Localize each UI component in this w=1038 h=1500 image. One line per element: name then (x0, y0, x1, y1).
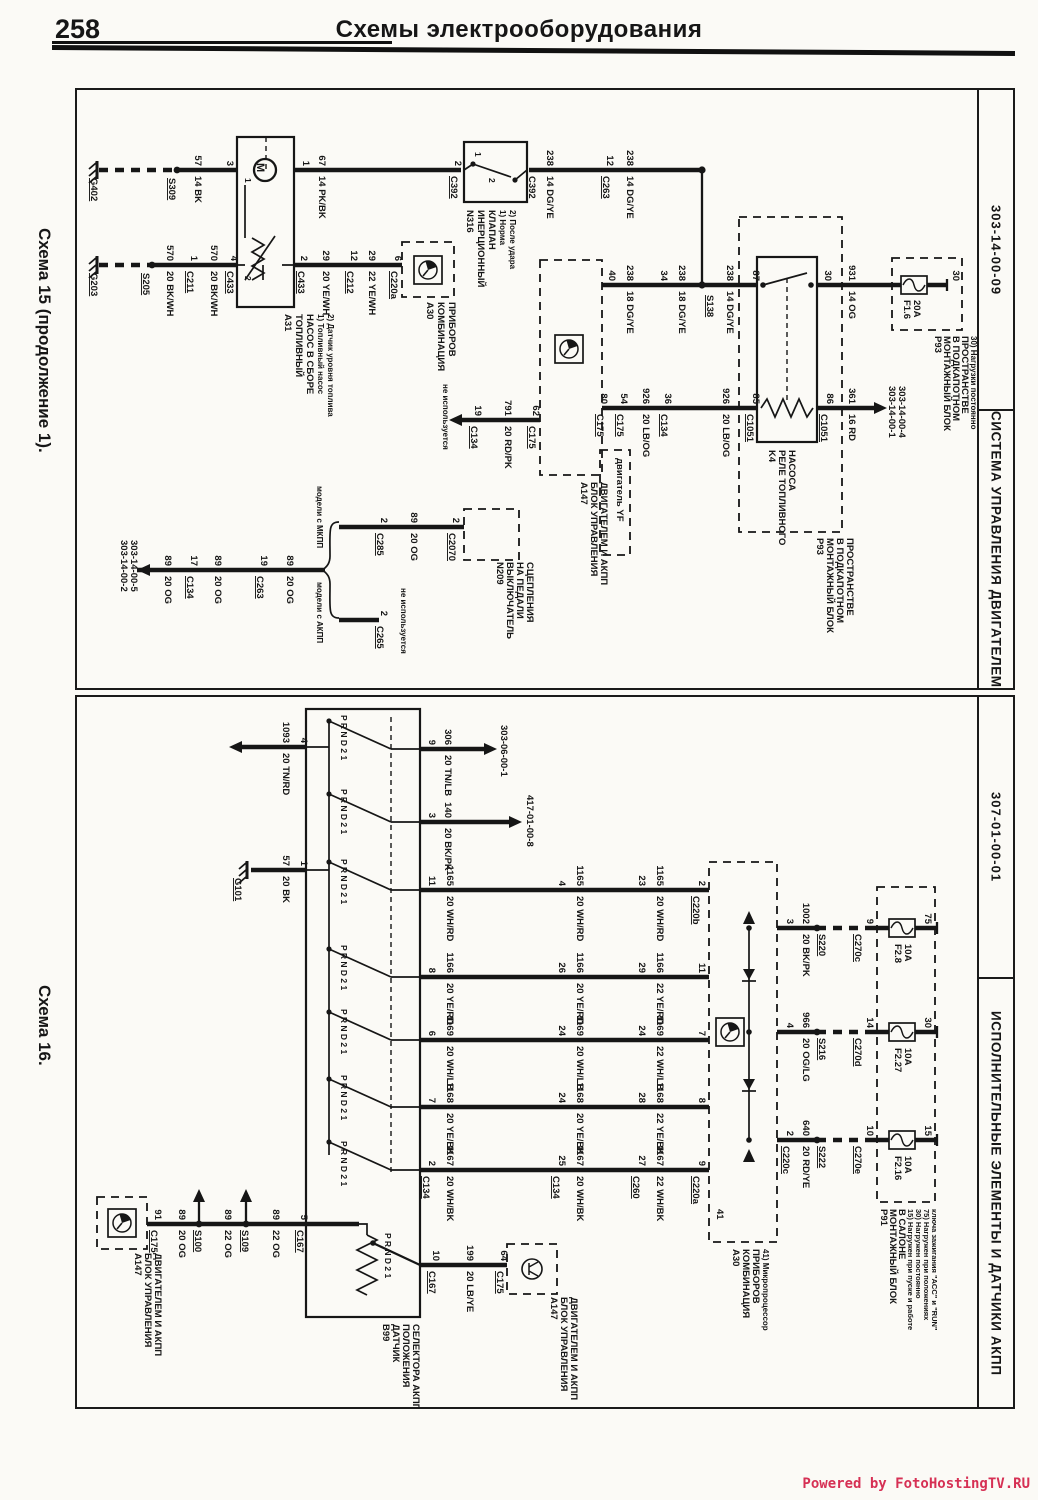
diagram-label: C212 (344, 271, 355, 294)
diagram-label: S216 (816, 1038, 827, 1060)
diagram-label: 2 (784, 1131, 795, 1136)
diagram-label: P R N D 2 1 (339, 1141, 349, 1186)
diagram-label: ПРИБОРОВ (446, 302, 457, 357)
diagram-label: A147 (548, 1297, 559, 1320)
diagram-label: 6 (426, 1031, 437, 1036)
diagram-label: 1166 (654, 952, 665, 973)
a30-cluster-box (709, 862, 777, 1242)
arrow-icon (509, 816, 522, 828)
diagram-label: 20 TN/RD (280, 753, 291, 795)
diagram-label: 2 (452, 161, 463, 166)
diagram-label: 15 (922, 1125, 933, 1136)
diagram-label: C220b (690, 896, 701, 925)
diagram-label: В САЛОНЕ (896, 1209, 907, 1259)
diagram-label: C433 (295, 271, 306, 294)
diagram-label: НАСОС В СБОРЕ (304, 314, 315, 394)
diagram-label: 966 (800, 1012, 811, 1028)
diagram-label: 89 (270, 1209, 281, 1220)
diagram-label: C175 (526, 426, 537, 449)
diagram-label: N209 (494, 562, 505, 585)
diagram-label: 11 (426, 876, 437, 887)
diagram-label: 20 LB/YE (464, 1271, 475, 1312)
diagram-label: 10 (864, 1125, 875, 1136)
diagram-label: 86 (824, 393, 835, 404)
diagram-label: C260 (630, 1176, 641, 1199)
diagram-label: 89 (408, 512, 419, 523)
diagram-label: 14 PK/BK (316, 176, 327, 219)
arrow-icon (874, 402, 887, 414)
page-title: Схемы электрооборудования (0, 16, 1038, 44)
diagram-label: 25 (556, 1155, 567, 1166)
diagram-label: 303-06-00-1 (498, 725, 509, 777)
diagram-label: 19 (472, 405, 483, 416)
diagram-label: C175 (594, 414, 605, 437)
diagram-label: 12 (348, 250, 359, 261)
diagram-label: 20 RD/PK (502, 426, 513, 469)
diagram-label: 10A (902, 944, 913, 962)
diagram-label: 20 TN/LB (442, 755, 453, 796)
diagram-label: 9 (864, 919, 875, 924)
diagram-label: 89 (212, 555, 223, 566)
diagram-label: 4 (784, 1023, 795, 1029)
diagram-label: 9 (426, 740, 437, 745)
diagram-label: 1 (473, 152, 483, 157)
scheme16-caption: Схема 16. (34, 985, 54, 1066)
diagram-label: P R N D 2 1 (339, 1075, 349, 1120)
diagram-label: ИНЕРЦИОННЫЙ (475, 210, 487, 288)
diagram-label: не используется (399, 588, 408, 654)
gauge-icon (555, 335, 583, 363)
diagram-label: 20 BK/WH (208, 271, 219, 317)
diagram-label: ДВИГАТЕЛЕМ И АКПП (598, 482, 609, 585)
diagram-label: КЛАПАН (486, 210, 497, 250)
diagram-label: 23 (636, 875, 647, 886)
diagram-label: B99 (380, 1324, 391, 1341)
diagram-label: ВЫКЛЮЧАТЕЛЬ (504, 562, 515, 639)
diagram-label: 238 (724, 265, 735, 281)
diagram-label: F2.16 (892, 1156, 903, 1180)
section-title-cell: ИСПОЛНИТЕЛЬНЫЕ ЭЛЕМЕНТЫ И ДАТЧИКИ АКПП (979, 979, 1013, 1407)
diagram-label: В ПОДКАПОТНОМ (834, 538, 845, 623)
watermark: Powered by FotoHostingTV.RU (802, 1476, 1030, 1492)
diagram-label: 20 LB/OG (640, 414, 651, 457)
diagram-label: 7 (426, 1098, 437, 1103)
scheme15-diagram: G402S3095714 BK316714 PK/BKM122C39212C39… (77, 90, 977, 688)
diagram-label: ДАТЧИК (390, 1324, 401, 1362)
diagram-label: C134 (468, 426, 479, 449)
diagram-label: 20 OG (176, 1230, 187, 1258)
scheme15-labels: G402S3095714 BK316714 PK/BKM122C39212C39… (88, 150, 977, 654)
diagram-label: S109 (239, 1230, 250, 1252)
diagram-label: 1166 (444, 952, 455, 973)
diagram-label: двигатель YF (614, 458, 625, 522)
diagram-label: 4 (556, 881, 567, 887)
scheme16-diagram: 930620 TN/LB303-06-00-1314020 BK/PK417-0… (77, 697, 977, 1407)
diagram-label: ДВИГАТЕЛЕМ И АКПП (568, 1297, 579, 1400)
diagram-label: C211 (184, 271, 195, 294)
diagram-label: БЛОК УПРАВЛЕНИЯ (588, 482, 599, 576)
diagram-label: 2 (487, 178, 497, 183)
diagram-label: C265 (374, 626, 385, 649)
diagram-label: 14 DG/YE (724, 291, 735, 334)
diagram-label: C2070 (446, 533, 457, 561)
diagram-label: S309 (166, 178, 177, 200)
diagram-label: 89 (162, 555, 173, 566)
diagram-label: 30 (950, 270, 961, 281)
diagram-label: P R N D 2 1 (339, 715, 349, 760)
diagram-label: 9 (696, 1161, 707, 1166)
section-strip: 307-01-00-01 ИСПОЛНИТЕЛЬНЫЕ ЭЛЕМЕНТЫ И Д… (977, 697, 1013, 1407)
diagram-label: 20 OG (162, 576, 173, 604)
diagram-label: 570 (164, 245, 175, 261)
diagram-label: C270d (852, 1038, 863, 1067)
diagram-label: 18 DG/YE (676, 291, 687, 334)
diagram-label: ключа зажигания "ACC" и "RUN" (930, 1209, 939, 1331)
diagram-label: 640 (800, 1120, 811, 1136)
diagram-label: 12 (604, 155, 615, 166)
diagram-label: 1167 (444, 1145, 455, 1166)
diagram-label: 238 (624, 265, 635, 281)
diagram-label: 14 (864, 1017, 875, 1028)
diagram-label: 1165 (444, 865, 455, 886)
diagram-label: C270e (852, 1146, 863, 1174)
diagram-label: 20 BK/WH (164, 271, 175, 317)
diagram-label: ПРОСТРАНСТВЕ (959, 336, 970, 414)
diagram-label: 2 (243, 276, 253, 281)
header-rule-thin (52, 41, 392, 44)
section-code-cell: 303-14-00-09 (979, 90, 1013, 411)
diagram-label: 10A (902, 1156, 913, 1174)
diagram-label: 20 RD/YE (800, 1146, 811, 1188)
diagram-label: C134 (420, 1176, 431, 1199)
diagram-label: 2 (378, 518, 389, 523)
diagram-label: 1167 (574, 1145, 585, 1166)
diagram-label: РЕЛЕ ТОПЛИВНОГО (776, 450, 787, 545)
section-code-cell: 307-01-00-01 (979, 697, 1013, 979)
diagram-label: 20 WH/RD (654, 896, 665, 942)
diagram-label: 238 (676, 265, 687, 281)
diagram-label: 1168 (574, 1082, 585, 1103)
diagram-label: A30 (424, 302, 435, 319)
diagram-label: 36 (662, 393, 673, 404)
diagram-label: 30) Нагружен постоянно (914, 1209, 923, 1299)
diagram-panel-scheme16: 930620 TN/LB303-06-00-1314020 BK/PK417-0… (75, 695, 1015, 1409)
transistor-icon (522, 1259, 542, 1279)
diagram-label: НАСОСА (786, 450, 797, 491)
diagram-label: P R N D 2 1 (339, 945, 349, 990)
diagram-label: ТОПЛИВНЫЙ (293, 314, 305, 377)
diagram-label: 2 (298, 256, 309, 261)
diagram-label: 926 (640, 388, 651, 404)
diagram-label: 30) Нагрузки постоянно (969, 336, 977, 430)
scheme16-labels: 930620 TN/LB303-06-00-1314020 BK/PK417-0… (132, 715, 939, 1407)
diagram-label: 18 DG/YE (624, 291, 635, 334)
diagram-label: 570 (208, 245, 219, 261)
diagram-label: 140 (442, 802, 453, 818)
diagram-label: 24 (556, 1025, 567, 1036)
diagram-label: 29 (320, 250, 331, 261)
diagram-label: 1169 (444, 1015, 455, 1036)
diagram-label: 57 (280, 855, 291, 866)
diagram-label: КОМБИНАЦИЯ (435, 302, 446, 371)
diagram-label: 20A (911, 300, 922, 318)
diagram-label: 1168 (444, 1082, 455, 1103)
diagram-label: F1.6 (901, 300, 912, 319)
diagram-label: 40 (606, 270, 617, 281)
diagram-label: 89 (222, 1209, 233, 1220)
diagram-label: НА ПЕДАЛИ (514, 562, 525, 619)
diagram-label: 303-14-00-5 (128, 540, 139, 592)
diagram-label: 4 (298, 738, 309, 744)
diagram-label: 1167 (654, 1145, 665, 1166)
selector-resistor (306, 1224, 420, 1295)
diagram-label: G203 (88, 273, 99, 296)
diagram-label: 1168 (654, 1082, 665, 1103)
diagram-label: S222 (816, 1146, 827, 1168)
diagram-label: 1166 (574, 952, 585, 973)
diagram-label: 87 (750, 270, 761, 281)
diagram-label: 20 WH/BK (574, 1176, 585, 1222)
diagram-label: 15) Нагружен при пуске и работе (906, 1209, 915, 1330)
diagram-label: 19 (258, 555, 269, 566)
diagram-label: C134 (550, 1176, 561, 1199)
arrow-icon (229, 741, 242, 753)
diagram-label: 75) Нагружен при положениях (922, 1209, 931, 1321)
diagram-label: БЛОК УПРАВЛЕНИЯ (558, 1297, 569, 1391)
section-title: СИСТЕМА УПРАВЛЕНИЯ ДВИГАТЕЛЕМ (989, 411, 1004, 688)
diagram-label: 28 (636, 1092, 647, 1103)
diagram-label: 16 RD (846, 414, 857, 441)
section-code: 307-01-00-01 (989, 792, 1004, 882)
diagram-label: C167 (294, 1230, 305, 1253)
diagram-label: 30 (822, 270, 833, 281)
diagram-label: 20 BK/PK (800, 934, 811, 977)
diagram-label: 91 (152, 1209, 163, 1220)
diagram-label: 17 (188, 555, 199, 566)
diagram-label: 3 (426, 813, 437, 818)
diagram-panel-scheme15: G402S3095714 BK316714 PK/BKM122C39212C39… (75, 88, 1015, 690)
diagram-label: 1093 (280, 722, 291, 743)
diagram-label: 41) Микропроцессор (761, 1249, 770, 1331)
diagram-label: 14 DG/YE (544, 176, 555, 219)
diagram-label: 926 (720, 388, 731, 404)
diagram-label: 3 (224, 161, 235, 166)
diagram-label: C175 (494, 1271, 505, 1294)
diagram-label: 361 (846, 388, 857, 405)
brace (323, 522, 339, 618)
diagram-label: 8 (696, 1098, 707, 1103)
diagram-label: C270c (852, 934, 863, 962)
diagram-label: 5 (298, 1215, 309, 1221)
diagram-label: 20 LB/OG (720, 414, 731, 457)
diagram-label: 2) Датчик уровня топлива (326, 314, 335, 417)
diagram-label: 1 (298, 861, 309, 867)
diagram-label: 6 (392, 256, 403, 261)
diagram-label: C167 (426, 1271, 437, 1294)
diagram-label: 303-14-00-4 (896, 386, 907, 438)
diagram-label: СЦЕПЛЕНИЯ (524, 562, 535, 623)
diagram-label: 1169 (654, 1015, 665, 1036)
diagram-label: 2 (450, 518, 461, 523)
diagram-label: 2) После удара (508, 210, 517, 270)
diagram-label: 8 (426, 968, 437, 973)
diagram-label: 14 BK (192, 176, 203, 203)
diagram-label: 2 (696, 881, 707, 886)
diagram-label: C1051 (744, 414, 755, 443)
diagram-label: 3 (784, 919, 795, 924)
diagram-label: P R N D 2 1 (339, 789, 349, 834)
diagram-label: 22 YE/WH (366, 271, 377, 315)
diagram-label: C134 (184, 576, 195, 599)
diagram-label: 22 OG (222, 1230, 233, 1258)
diagram-label: 238 (544, 150, 555, 166)
diagram-label: 20 OG (284, 576, 295, 604)
diagram-label: P R N D 2 1 (339, 1009, 349, 1054)
diagram-label: 67 (316, 155, 327, 166)
diagram-label: 1) Норма (498, 210, 507, 246)
diagram-label: 24 (556, 1092, 567, 1103)
fuse-icon (901, 276, 927, 294)
diagram-label: 303-14-00-2 (118, 540, 129, 592)
diagram-label: 417-01-00-8 (524, 795, 535, 847)
diagram-label: C134 (658, 414, 669, 437)
diagram-label: C433 (224, 271, 235, 294)
diagram-label: 14 OG (846, 291, 857, 319)
diagram-label: 10 (430, 1250, 441, 1261)
diagram-label: 20 OG (408, 533, 419, 561)
diagram-label: ПРОСТРАНСТВЕ (844, 538, 855, 616)
diagram-label: C220a (690, 1176, 701, 1205)
section-code: 303-14-00-09 (989, 205, 1004, 295)
diagram-label: C175 (148, 1230, 159, 1253)
diagram-label: 10A (902, 1048, 913, 1066)
diagram-label: ДВИГАТЕЛЕМ И АКПП (152, 1253, 163, 1356)
diagram-label: 1165 (654, 865, 665, 886)
diagram-label: 20 WH/RD (574, 896, 585, 942)
diagram-label: G101 (232, 878, 243, 902)
diagram-label: 14 DG/YE (624, 176, 635, 219)
diagram-label: C220a (388, 271, 399, 300)
diagram-label: C392 (448, 176, 459, 199)
section-strip: 303-14-00-09 СИСТЕМА УПРАВЛЕНИЯ ДВИГАТЕЛ… (977, 90, 1013, 688)
diagram-label: A31 (282, 314, 293, 332)
diagram-label: 1 (300, 161, 311, 167)
diagram-label: ПРИБОРОВ (750, 1249, 761, 1304)
diagram-label: S100 (192, 1230, 203, 1252)
section-title: ИСПОЛНИТЕЛЬНЫЕ ЭЛЕМЕНТЫ И ДАТЧИКИ АКПП (989, 1011, 1004, 1376)
diagram-label: 89 (284, 555, 295, 566)
diagram-label: 11 (696, 963, 707, 974)
diagram-label: 2 (426, 1161, 437, 1166)
diagram-label: 27 (636, 1155, 647, 1166)
diagram-label: C175 (614, 414, 625, 437)
diagram-label: 62 (530, 405, 541, 416)
diagram-label: M (254, 163, 266, 172)
diagram-label: F2.8 (892, 944, 903, 963)
diagram-label: 26 (556, 962, 567, 973)
a147-ecu-box (540, 260, 602, 475)
diagram-label: 64 (498, 1250, 509, 1261)
diagram-label: N316 (464, 210, 475, 233)
diagram-label: БЛОК УПРАВЛЕНИЯ (142, 1253, 153, 1347)
diagram-label: F2.27 (892, 1048, 903, 1072)
diagram-label: модели с МКПП (315, 486, 324, 548)
diagram-label: модели с АКПП (315, 582, 324, 643)
diagram-label: P R N D 2 1 (383, 1233, 393, 1278)
diagram-label: 75 (922, 913, 933, 924)
diagram-label: ПОЛОЖЕНИЯ (400, 1324, 411, 1388)
diagram-label: 54 (618, 393, 629, 404)
diagram-label: 30 (922, 1017, 933, 1028)
diagram-label: A30 (730, 1249, 741, 1266)
fuse-icon (889, 919, 915, 937)
diagram-label: 791 (502, 400, 513, 417)
scheme15-caption: Схема 15 (продолжение 1). (34, 228, 54, 453)
diagram-label: C285 (374, 533, 385, 556)
diagram-label: C263 (254, 576, 265, 599)
diagram-label: A147 (132, 1253, 143, 1276)
section-title-cell: СИСТЕМА УПРАВЛЕНИЯ ДВИГАТЕЛЕМ (979, 411, 1013, 688)
diagram-label: 20 YE/WH (320, 271, 331, 315)
diagram-label: 22 OG (270, 1230, 281, 1258)
diagram-label: 20 WH/BK (444, 1176, 455, 1222)
diagram-label: 1165 (574, 865, 585, 886)
diagram-label: S220 (816, 934, 827, 956)
diagram-label: 7 (696, 1031, 707, 1036)
gauge-icon (108, 1209, 136, 1237)
diagram-label: G402 (88, 178, 99, 201)
diagram-label: 1 (188, 256, 199, 262)
diagram-label: S138 (704, 295, 715, 317)
diagram-label: 306 (442, 729, 453, 745)
diagram-label: 199 (464, 1245, 475, 1261)
fuse-icon (889, 1131, 915, 1149)
diagram-label: 1) Топливный насос (316, 314, 325, 395)
diagram-label: СЕЛЕКТОРА АКПП (410, 1324, 421, 1407)
diagram-label: 238 (624, 150, 635, 166)
diagram-label: S205 (140, 273, 151, 296)
diagram-label: 20 WH/RD (444, 896, 455, 942)
diagram-label: 41 (714, 1209, 725, 1220)
diagram-label: 20 OG/LG (800, 1038, 811, 1082)
diagram-label: 57 (192, 155, 203, 166)
diagram-label: 22 WH/BK (654, 1176, 665, 1222)
diagram-label: 80 (598, 393, 609, 404)
diagram-label: 24 (636, 1025, 647, 1036)
gauge-icon (716, 1018, 744, 1046)
diagram-label: P93 (814, 538, 825, 555)
gauge-icon (414, 256, 442, 284)
diagram-label: C263 (600, 176, 611, 199)
diagram-label: 85 (750, 393, 761, 404)
diagram-label: 2 (378, 611, 389, 616)
diagram-label: 34 (658, 270, 669, 281)
arrow-icon (484, 743, 497, 755)
diagram-label: 1169 (574, 1015, 585, 1036)
diagram-label: 1002 (800, 903, 811, 924)
diagram-label: K4 (766, 450, 777, 463)
diagram-label: КОМБИНАЦИЯ (740, 1249, 751, 1318)
diagram-label: 4 (228, 256, 239, 262)
header-rule (52, 45, 1015, 56)
diagram-label: 20 OG (212, 576, 223, 604)
diagram-label: 29 (366, 250, 377, 261)
diagram-label: 20 BK (280, 876, 291, 903)
n209-switch-box (464, 509, 519, 560)
diagram-label: C392 (526, 176, 537, 199)
diagram-label: 303-14-00-1 (886, 386, 897, 438)
diagram-label: C1051 (818, 414, 829, 443)
